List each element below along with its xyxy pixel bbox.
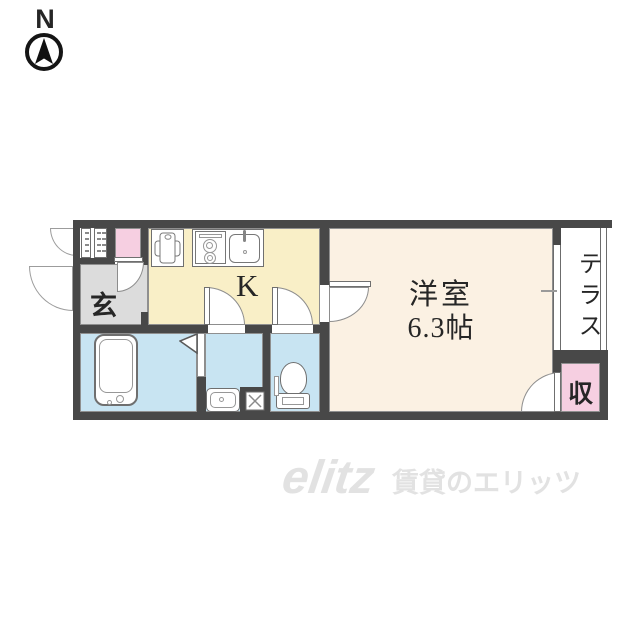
wall-left <box>73 220 80 420</box>
bath-faucet-icon <box>116 395 124 403</box>
stove-burner-icon <box>206 242 213 249</box>
meter-box-hatch <box>102 232 106 254</box>
wall <box>600 363 608 420</box>
wall <box>197 377 206 412</box>
label-western-room-size: 6.3帖 <box>349 312 533 345</box>
washbasin-faucet-icon <box>219 397 224 402</box>
toilet-bowl <box>280 362 307 395</box>
floor-drain-icon <box>245 391 265 411</box>
wall <box>80 258 115 264</box>
compass-north-label: N <box>23 4 67 35</box>
wall <box>320 322 329 412</box>
sliding-window <box>553 245 561 350</box>
wall <box>320 228 329 285</box>
meter-box <box>81 228 91 258</box>
floorplan: N <box>0 0 640 640</box>
stove-burner-icon <box>207 255 213 261</box>
watermark-text: 賃貸のエリッツ <box>392 461 581 500</box>
counter-unit-icon <box>151 229 184 267</box>
label-storage: 収 <box>568 374 593 410</box>
folding-door-icon <box>179 331 199 355</box>
toilet-paper-holder <box>274 376 279 396</box>
label-genkan: 玄 <box>90 284 117 323</box>
door-leaf <box>204 287 210 325</box>
wall-bottom <box>73 412 608 420</box>
compass-icon <box>25 33 63 71</box>
bath-drain-icon <box>107 400 112 405</box>
sink-drain-icon <box>243 250 247 254</box>
counter-unit <box>151 229 184 267</box>
toilet-tank-inner <box>282 397 304 405</box>
compass-needle-icon <box>29 37 59 67</box>
label-terrace: テラス <box>570 251 605 355</box>
door-leaf <box>114 257 143 262</box>
wall-top <box>73 220 612 228</box>
meter-box <box>94 228 107 258</box>
watermark-logo: elitz <box>279 449 378 504</box>
entrance-door-swing-arc <box>29 266 73 311</box>
bathtub-inner <box>99 339 133 393</box>
window-tick <box>541 290 557 292</box>
label-western-room: 洋室 6.3帖 <box>349 279 533 345</box>
label-kitchen: K <box>236 268 258 304</box>
door-leaf <box>554 372 561 412</box>
stove <box>195 231 226 264</box>
door-leaf <box>272 287 278 325</box>
meter-box-hatch <box>97 232 101 254</box>
wall <box>553 228 561 245</box>
stove-bar <box>199 234 222 238</box>
faucet-icon <box>243 230 246 242</box>
meter-box-hatch <box>85 232 89 254</box>
label-western-room-name: 洋室 <box>349 279 533 312</box>
